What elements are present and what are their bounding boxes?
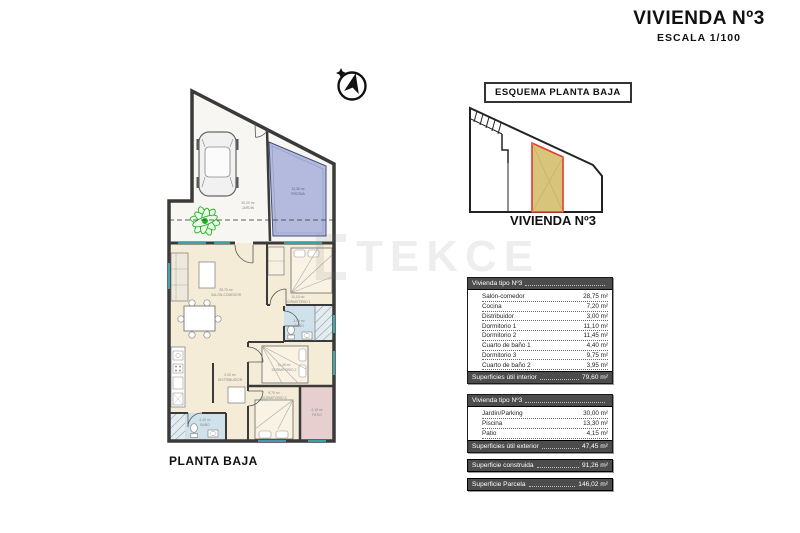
sink-bath1 [302,332,312,339]
table-row: Cocina7,20 m² [482,302,608,312]
page-title: VIVIENDA Nº3 [625,8,773,30]
label-dormitorio1-area: 11,10 m² [291,295,305,299]
hall-cabinet [228,387,245,403]
label-dormitorio2-area: 11,45 m² [277,363,291,367]
label-dormitorio3-name: DORMITORIO 3 [262,396,287,400]
interior-table-header: Vivienda tipo Nº3 [468,278,612,290]
coffee-table [199,262,215,288]
title-block: VIVIENDA Nº3 ESCALA 1/100 [625,8,773,44]
table-row: Piscina13,30 m² [482,419,608,429]
label-piscina-name: PISCINA [291,192,305,196]
label-jardin-area: 30,00 m² [241,201,255,205]
table-row: Dormitorio 211,45 m² [482,331,608,341]
watermark-text: TEKCE [356,235,540,279]
label-dormitorio1-name: DORMITORIO 1 [286,300,311,304]
superficie-parcela-bar: Superficie Parcela146,02 m² [467,478,613,491]
label-distribuidor-area: 3,00 m² [224,373,236,377]
floor-plan-caption: PLANTA BAJA [169,454,258,468]
label-bano1-area: 3,95 m² [293,319,305,323]
interior-header-label: Vivienda tipo Nº3 [472,280,522,287]
superficie-construida-bar: Superficie construida91,26 m² [467,459,613,472]
table-row: Cuarto de baño 14,40 m² [482,341,608,351]
table-row: Jardín/Parking30,00 m² [482,409,608,419]
sink-bath2 [208,430,218,437]
area-tables: Vivienda tipo Nº3 Salón-comedor28,75 m² … [467,277,613,491]
esquema-title-box: ESQUEMA PLANTA BAJA [484,82,632,103]
exterior-header-label: Vivienda tipo Nº3 [472,397,522,404]
table-row: Distribuidor3,00 m² [482,312,608,322]
table-row: Salón-comedor28,75 m² [482,292,608,302]
floor-plan-drawing: 30,00 m² JARDIN 13,30 m² PISCINA 28,75 m… [158,85,350,457]
label-piscina-area: 13,30 m² [291,187,305,191]
kitchen-counter [171,347,185,407]
label-bano2-area: 4,40 m² [199,418,211,422]
label-salon-area: 28,75 m² [219,288,233,292]
label-bano2-name: BAÑO [200,422,210,427]
toilet-bath2 [191,424,198,438]
site-schema-drawing [455,106,651,216]
car-icon [197,132,239,196]
page-subtitle: ESCALA 1/100 [625,32,773,44]
label-bano1-name: BAÑO [294,323,304,328]
label-dormitorio2-name: DORMITORIO 2 [272,368,297,372]
table-row: Dormitorio 39,75 m² [482,351,608,361]
label-jardin-name: JARDIN [242,206,255,210]
label-patio-area: 4,15 m² [311,408,323,412]
north-arrow-icon [331,64,373,106]
interior-areas-table: Vivienda tipo Nº3 Salón-comedor28,75 m² … [467,277,613,384]
label-distribuidor-name: DISTRIBUIDOR [218,378,243,382]
label-dormitorio3-area: 9,75 m² [268,391,280,395]
bed-dormitorio1 [291,248,332,293]
label-patio-name: PATIO [312,413,322,417]
bed-dormitorio3 [255,400,293,439]
label-salon-name: SALÓN-COMEDOR [211,292,242,297]
interior-table-footer: Superficies útil interior79,60 m² [468,371,612,383]
exterior-areas-table: Vivienda tipo Nº3 Jardín/Parking30,00 m²… [467,394,613,452]
table-row: Cuarto de baño 23,95 m² [482,360,608,370]
exterior-table-footer: Superficies útil exterior47,45 m² [468,440,612,452]
table-row: Dormitorio 111,10 m² [482,321,608,331]
exterior-table-header: Vivienda tipo Nº3 [468,395,612,407]
table-row: Patio4,15 m² [482,429,608,439]
sofa [171,253,188,301]
esquema-caption: VIVIENDA Nº3 [455,213,651,228]
